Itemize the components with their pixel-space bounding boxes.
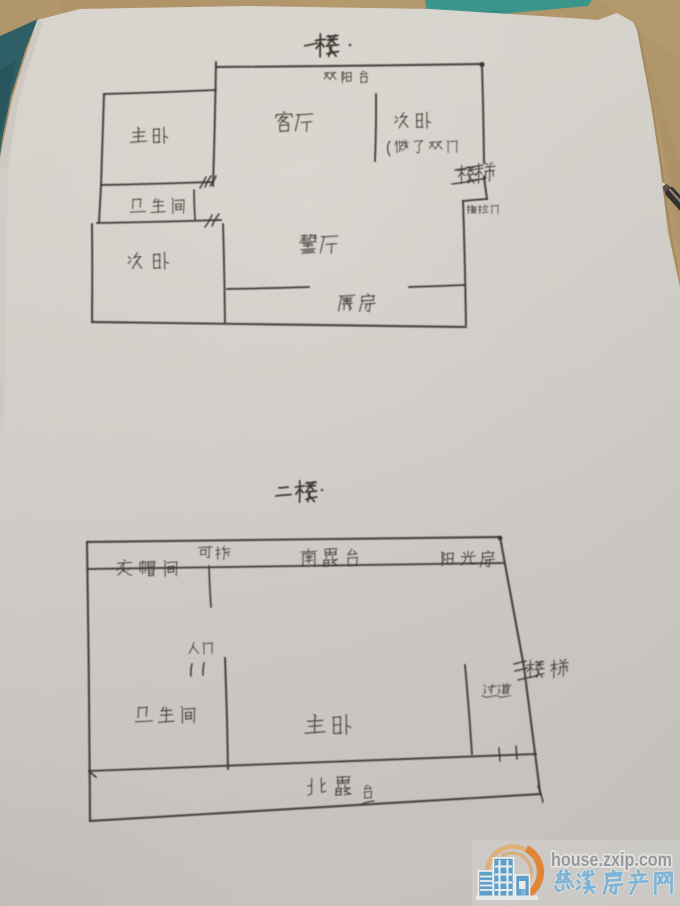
svg-text:house.zxip.com: house.zxip.com: [551, 850, 672, 871]
